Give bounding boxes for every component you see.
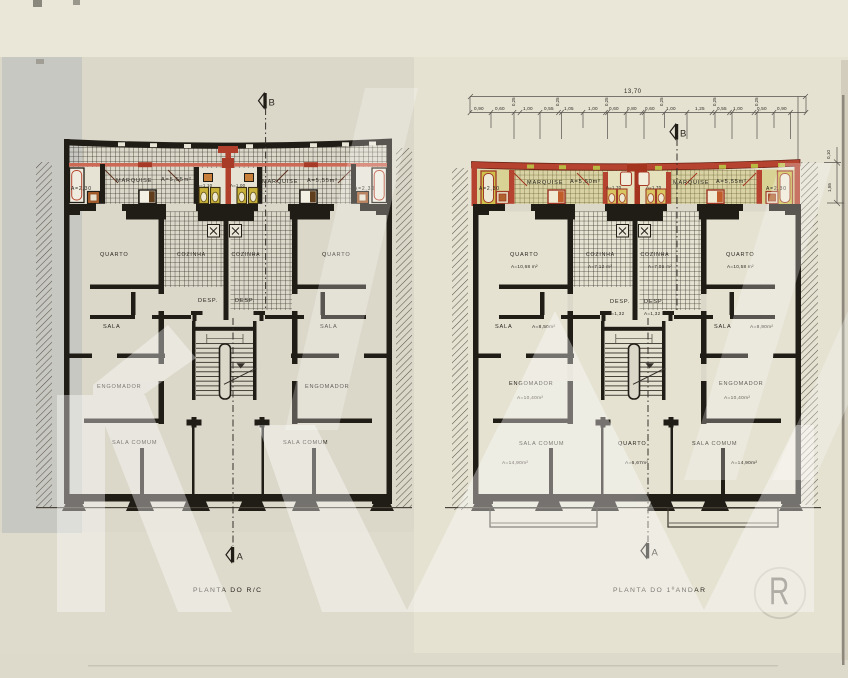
svg-text:0,25: 0,25 (712, 97, 717, 106)
svg-text:1,05: 1,05 (564, 106, 574, 111)
svg-text:SALA: SALA (714, 324, 732, 330)
svg-text:1,00: 1,00 (523, 106, 533, 111)
svg-text:0,25: 0,25 (604, 97, 609, 106)
svg-text:0,25: 0,25 (659, 97, 664, 106)
svg-text:A=1,70: A=1,70 (606, 185, 622, 190)
svg-text:COZINHA: COZINHA (232, 252, 261, 258)
svg-text:B: B (269, 98, 275, 109)
svg-text:SALA: SALA (103, 324, 121, 330)
svg-text:A=5,55m²: A=5,55m² (716, 179, 747, 185)
svg-text:0,90: 0,90 (777, 106, 787, 111)
svg-text:0,25: 0,25 (754, 97, 759, 106)
svg-text:A=2,30: A=2,30 (479, 186, 500, 192)
svg-text:A=10,68 m²: A=10,68 m² (511, 264, 538, 269)
svg-text:A: A (237, 552, 244, 563)
svg-text:0,10: 0,10 (826, 150, 831, 159)
svg-text:A=5,55m²: A=5,55m² (161, 177, 192, 183)
svg-text:0,25: 0,25 (511, 97, 516, 106)
svg-text:A=1,70: A=1,70 (646, 185, 662, 190)
svg-text:0,60: 0,60 (495, 106, 505, 111)
svg-text:COZINHA: COZINHA (586, 252, 615, 258)
svg-text:0,55: 0,55 (717, 106, 727, 111)
svg-text:MARQUISE: MARQUISE (527, 180, 563, 186)
svg-text:COZINHA: COZINHA (177, 252, 206, 258)
svg-text:0,55: 0,55 (544, 106, 554, 111)
svg-text:DESP.: DESP. (198, 298, 218, 304)
svg-text:0,60: 0,60 (609, 106, 619, 111)
svg-text:1,25: 1,25 (695, 106, 705, 111)
svg-text:1,00: 1,00 (733, 106, 743, 111)
svg-text:A=5,55m²: A=5,55m² (307, 178, 338, 184)
svg-text:1,00: 1,00 (588, 106, 598, 111)
svg-text:DESP.: DESP. (235, 298, 255, 304)
svg-text:COZINHA: COZINHA (641, 252, 670, 258)
svg-text:DESP.: DESP. (644, 299, 664, 305)
svg-text:A=7,05 m²: A=7,05 m² (648, 264, 672, 269)
svg-text:QUARTO: QUARTO (100, 252, 129, 258)
svg-text:QUARTO: QUARTO (510, 252, 539, 258)
svg-text:0,80: 0,80 (627, 106, 637, 111)
svg-text:QUARTO: QUARTO (726, 252, 755, 258)
svg-text:A=1,00: A=1,00 (230, 183, 246, 188)
svg-text:0,60: 0,60 (645, 106, 655, 111)
svg-text:0,25: 0,25 (555, 97, 560, 106)
svg-text:A=5,50m²: A=5,50m² (570, 179, 601, 185)
svg-text:1,55: 1,55 (827, 183, 832, 192)
svg-text:A=2,30: A=2,30 (71, 186, 92, 192)
svg-text:A=1,32: A=1,32 (644, 311, 661, 316)
svg-text:A=1,10: A=1,10 (197, 183, 213, 188)
svg-text:A=1,32: A=1,32 (608, 311, 625, 316)
svg-text:DESP.: DESP. (610, 299, 630, 305)
svg-text:13,70: 13,70 (624, 89, 642, 95)
svg-text:A=7,12 m²: A=7,12 m² (588, 264, 612, 269)
svg-text:MARQUISE: MARQUISE (262, 179, 298, 185)
svg-text:0,90: 0,90 (474, 106, 484, 111)
svg-text:SALA: SALA (495, 324, 513, 330)
svg-text:MARQUISE: MARQUISE (673, 180, 709, 186)
svg-text:1,00: 1,00 (666, 106, 676, 111)
svg-text:MARQUISE: MARQUISE (116, 178, 152, 184)
svg-text:B: B (680, 129, 686, 140)
